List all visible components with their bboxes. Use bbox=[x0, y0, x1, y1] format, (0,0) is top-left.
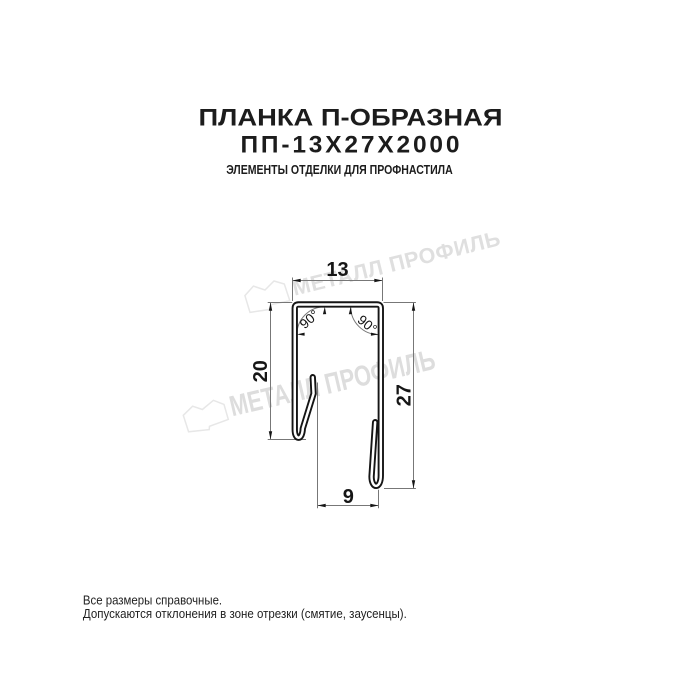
svg-text:Все размеры справочные.: Все размеры справочные. bbox=[83, 593, 222, 607]
svg-text:13: 13 bbox=[326, 259, 348, 281]
svg-text:ЭЛЕМЕНТЫ ОТДЕЛКИ ДЛЯ ПРОФНАСТИ: ЭЛЕМЕНТЫ ОТДЕЛКИ ДЛЯ ПРОФНАСТИЛА bbox=[226, 163, 453, 177]
svg-text:ПЛАНКА П-ОБРАЗНАЯ: ПЛАНКА П-ОБРАЗНАЯ bbox=[199, 105, 503, 132]
svg-text:20: 20 bbox=[250, 360, 272, 382]
svg-text:27: 27 bbox=[394, 384, 416, 406]
svg-text:9: 9 bbox=[343, 486, 354, 508]
svg-text:Допускаются отклонения в зоне: Допускаются отклонения в зоне отрезки (с… bbox=[83, 607, 407, 621]
